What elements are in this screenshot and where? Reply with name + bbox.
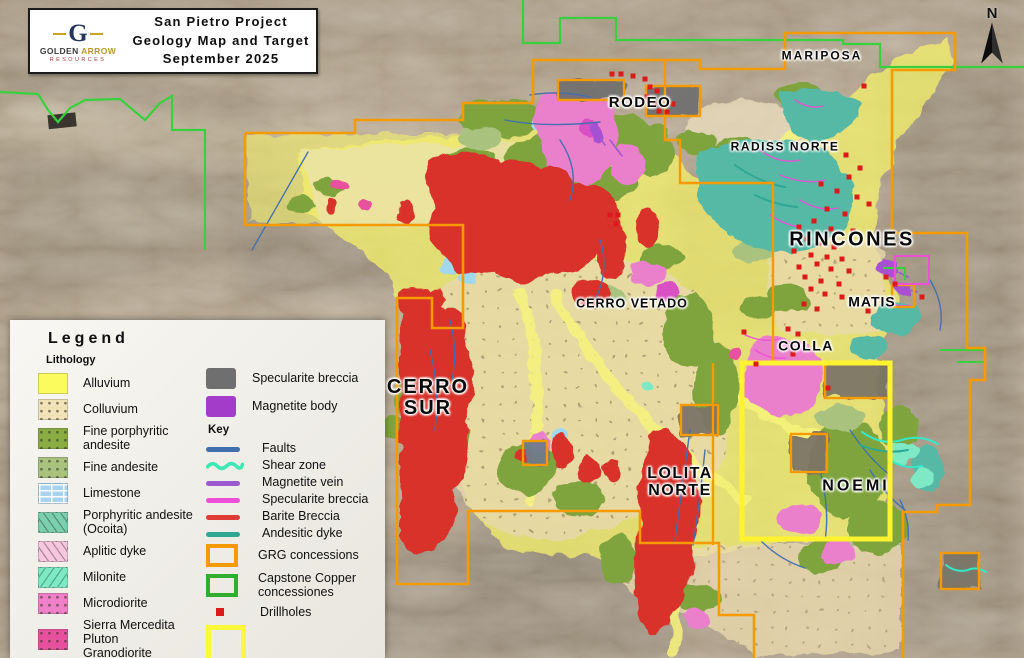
north-arrow-icon (979, 21, 1005, 67)
legend-key-column: Specularite brecciaMagnetite body Key Fa… (206, 368, 382, 658)
drillhole-marker (619, 72, 624, 77)
logo-word-golden: GOLDEN (40, 46, 79, 56)
drillhole-marker (815, 262, 820, 267)
drillhole-marker (832, 245, 837, 250)
drillhole-marker (805, 237, 810, 242)
legend-label: Porphyritic andesite (Ocoita) (83, 508, 193, 536)
drillhole-marker (809, 287, 814, 292)
title-line-1: San Pietro Project (126, 13, 316, 32)
legend-label: Drillholes (260, 606, 311, 620)
legend-label: Specularite breccia (262, 493, 368, 507)
drillhole-marker (847, 175, 852, 180)
drillhole-marker (862, 84, 867, 89)
legend-item-specularite-breccia: Specularite breccia (206, 493, 382, 507)
legend-label: Sierra Mercedita Pluton Granodiorite (83, 618, 206, 658)
legend-swatch (38, 428, 68, 449)
legend-box-swatch (206, 544, 238, 567)
drillhole-marker (920, 295, 925, 300)
drillhole-marker (893, 282, 898, 287)
drillhole-marker (655, 89, 660, 94)
legend-label: Barite Breccia (262, 510, 340, 524)
drillhole-marker (837, 282, 842, 287)
legend-label: GRG concessions (258, 549, 359, 563)
legend-key-lines: FaultsShear zoneMagnetite veinSpecularit… (206, 442, 382, 541)
drillhole-marker (614, 222, 619, 227)
drillhole-marker (843, 212, 848, 217)
drillhole-marker (819, 182, 824, 187)
legend-line-bar (206, 447, 240, 452)
legend-line-swatch (206, 515, 246, 520)
drillhole-marker (671, 102, 676, 107)
legend-label: Limestone (83, 486, 141, 500)
legend-label: Milonite (83, 570, 126, 584)
legend-label: Fine andesite (83, 460, 158, 474)
drillhole-marker (802, 302, 807, 307)
legend-label: Faults (262, 442, 296, 456)
drillhole-marker (631, 74, 636, 79)
golden-arrow-logo: G GOLDEN ARROW RESOURCES (30, 19, 126, 63)
drillhole-marker (754, 362, 759, 367)
legend-item-microdiorite: Microdiorite (38, 592, 206, 614)
logo-word-resources: RESOURCES (30, 58, 126, 64)
drillhole-marker (792, 249, 797, 254)
legend-item-magnetite-body: Magnetite body (206, 396, 382, 417)
drillhole-marker (840, 257, 845, 262)
legend-panel: Legend Lithology AlluviumColluviumFine p… (10, 320, 385, 658)
legend-swatch (206, 396, 236, 417)
legend-item-shear-zone: Shear zone (206, 459, 382, 473)
legend-line-swatch (206, 498, 246, 503)
legend-swatch (38, 483, 68, 504)
drillhole-marker (652, 102, 657, 107)
legend-label: Alluvium (83, 376, 130, 390)
legend-item-andesitic-dyke: Andesitic dyke (206, 527, 382, 541)
legend-item-limestone: Limestone (38, 482, 206, 504)
drillhole-marker (817, 241, 822, 246)
drillhole-marker (829, 227, 834, 232)
legend-label: Capstone Copper concessiones (258, 572, 356, 600)
legend-item-fine-andesite: Fine andesite (38, 456, 206, 478)
drillhole-marker (829, 267, 834, 272)
title-line-2: Geology Map and Target (126, 32, 316, 51)
legend-line-swatch (206, 481, 246, 486)
geology-map-page: MARIPOSARODEORADISS NORTERINCONESCERRO V… (0, 0, 1024, 658)
legend-item-fine-porphyritic-andesite: Fine porphyritic andesite (38, 424, 206, 452)
legend-key-boxes: GRG concessionsCapstone Copper concessio… (206, 544, 382, 600)
drillhole-marker (826, 386, 831, 391)
legend-item-grg-concessions: GRG concessions (206, 544, 382, 567)
legend-line-swatch (206, 447, 246, 452)
drillhole-marker (867, 202, 872, 207)
drillhole-marker (665, 110, 670, 115)
legend-label: Microdiorite (83, 596, 148, 610)
drillhole-marker (884, 275, 889, 280)
legend-swatch (38, 593, 68, 614)
legend-lithology-heading: Lithology (46, 354, 96, 366)
legend-label: Magnetite body (252, 400, 337, 414)
drillhole-marker (791, 352, 796, 357)
legend-label: Andesitic dyke (262, 527, 343, 541)
legend-label: Aplitic dyke (83, 544, 146, 558)
legend-line-swatch (206, 532, 246, 537)
legend-lithology-column: AlluviumColluviumFine porphyritic andesi… (38, 372, 206, 658)
legend-line-bar (206, 498, 240, 503)
legend-bodies-list: Specularite brecciaMagnetite body (206, 368, 382, 417)
legend-item-magnetite-vein: Magnetite vein (206, 476, 382, 490)
legend-item-milonite: Milonite (38, 566, 206, 588)
legend-label: Shear zone (262, 459, 326, 473)
legend-line-swatch (206, 460, 246, 472)
legend-item-aplitic-dyke: Aplitic dyke (38, 540, 206, 562)
legend-item-colluvium: Colluvium (38, 398, 206, 420)
drillhole-marker (825, 207, 830, 212)
drillhole-marker (797, 265, 802, 270)
legend-swatch (38, 399, 68, 420)
drillhole-marker (797, 225, 802, 230)
legend-swatch (38, 512, 68, 533)
drillhole-marker (840, 295, 845, 300)
drillhole-marker (643, 77, 648, 82)
logo-company-name: GOLDEN ARROW (30, 47, 126, 56)
legend-swatch (38, 541, 68, 562)
legend-line-bar (206, 481, 240, 486)
legend-key-heading: Key (208, 424, 382, 436)
legend-swatch (38, 457, 68, 478)
legend-label: Fine porphyritic andesite (83, 424, 168, 452)
legend-swatch (38, 373, 68, 394)
north-indicator: N (974, 6, 1010, 70)
drillhole-marker (823, 292, 828, 297)
north-label: N (974, 6, 1010, 21)
logo-word-arrow: ARROW (81, 46, 116, 56)
title-line-3: September 2025 (126, 50, 316, 69)
legend-item-alluvium: Alluvium (38, 372, 206, 394)
drillhole-marker (855, 195, 860, 200)
title-box: G GOLDEN ARROW RESOURCES San Pietro Proj… (28, 8, 318, 74)
legend-item-specularite-breccia: Specularite breccia (206, 368, 382, 389)
legend-title: Legend (48, 330, 129, 348)
legend-item-barite-breccia: Barite Breccia (206, 510, 382, 524)
drillhole-marker (616, 213, 621, 218)
legend-line-bar (206, 532, 240, 537)
drillhole-marker (809, 253, 814, 258)
drillhole-marker (858, 166, 863, 171)
legend-item-porphyritic-andesite-ocoita: Porphyritic andesite (Ocoita) (38, 508, 206, 536)
drillhole-marker (796, 332, 801, 337)
area-figure-swatch (206, 625, 246, 658)
drillhole-marker (803, 275, 808, 280)
legend-label: Magnetite vein (262, 476, 343, 490)
legend-box-swatch (206, 574, 238, 597)
drillhole-marker (645, 95, 650, 100)
drillhole-marker (815, 307, 820, 312)
legend-swatch (38, 629, 68, 650)
drillhole-marker (610, 72, 615, 77)
drillhole-marker (648, 85, 653, 90)
legend-item-drillholes: Drillholes (206, 606, 382, 620)
drillhole-swatch (216, 608, 224, 616)
drillhole-marker (866, 309, 871, 314)
drillhole-marker (825, 255, 830, 260)
legend-item-sierra-mercedita-pluton-granodiorite: Sierra Mercedita Pluton Granodiorite (38, 618, 206, 658)
legend-item-capstone-copper-concessiones: Capstone Copper concessiones (206, 572, 382, 600)
legend-label: Colluvium (83, 402, 138, 416)
drillhole-marker (812, 219, 817, 224)
legend-swatch (38, 567, 68, 588)
legend-item-faults: Faults (206, 442, 382, 456)
drillhole-marker (819, 279, 824, 284)
drillhole-marker (835, 189, 840, 194)
legend-label: Specularite breccia (252, 372, 358, 386)
drillhole-marker (847, 269, 852, 274)
drillhole-marker (851, 229, 856, 234)
drillhole-marker (608, 213, 613, 218)
map-title: San Pietro Project Geology Map and Targe… (126, 13, 316, 70)
drillhole-marker (786, 327, 791, 332)
legend-item-area-figure-2: Area figure 2 (206, 625, 382, 658)
drillhole-marker (844, 153, 849, 158)
legend-line-bar (206, 515, 240, 520)
drillhole-marker (657, 109, 662, 114)
drillhole-marker (742, 330, 747, 335)
logo-monogram: G (54, 21, 101, 46)
legend-swatch (206, 368, 236, 389)
